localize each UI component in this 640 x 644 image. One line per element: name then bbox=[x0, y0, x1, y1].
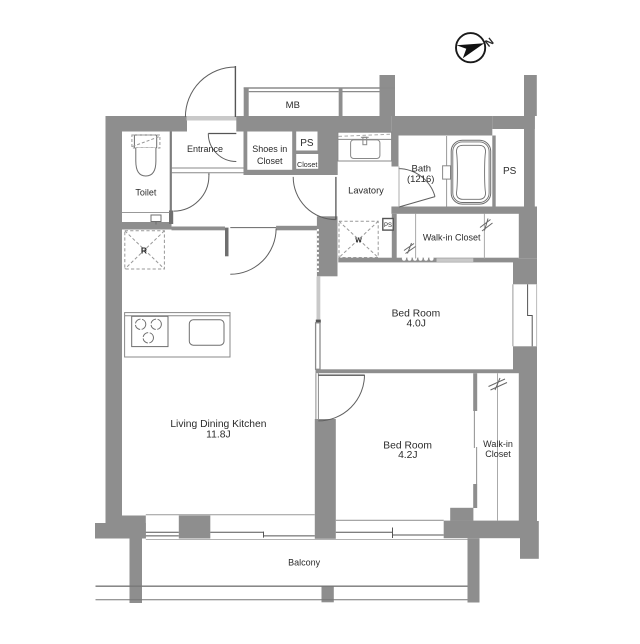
svg-text:PS: PS bbox=[300, 138, 314, 149]
svg-text:Closet: Closet bbox=[297, 160, 317, 169]
svg-text:Lavatory: Lavatory bbox=[348, 186, 384, 196]
svg-text:11.8J: 11.8J bbox=[206, 429, 230, 440]
svg-text:Walk-in: Walk-in bbox=[483, 439, 513, 449]
svg-text:Walk-in Closet: Walk-in Closet bbox=[423, 233, 481, 243]
svg-text:PS: PS bbox=[384, 223, 392, 229]
svg-text:Shoes in: Shoes in bbox=[252, 144, 287, 154]
svg-text:(1216): (1216) bbox=[407, 174, 434, 185]
svg-text:PS: PS bbox=[503, 166, 517, 177]
svg-text:4.0J: 4.0J bbox=[406, 319, 425, 330]
svg-text:4.2J: 4.2J bbox=[398, 450, 417, 461]
svg-text:Toilet: Toilet bbox=[135, 188, 157, 198]
svg-text:Balcony: Balcony bbox=[288, 558, 321, 568]
svg-text:MB: MB bbox=[286, 100, 300, 111]
svg-text:Closet: Closet bbox=[485, 449, 511, 459]
svg-text:Entrance: Entrance bbox=[187, 144, 223, 154]
svg-text:Closet: Closet bbox=[257, 156, 283, 166]
svg-text:W: W bbox=[355, 238, 362, 245]
svg-text:R: R bbox=[141, 245, 147, 255]
